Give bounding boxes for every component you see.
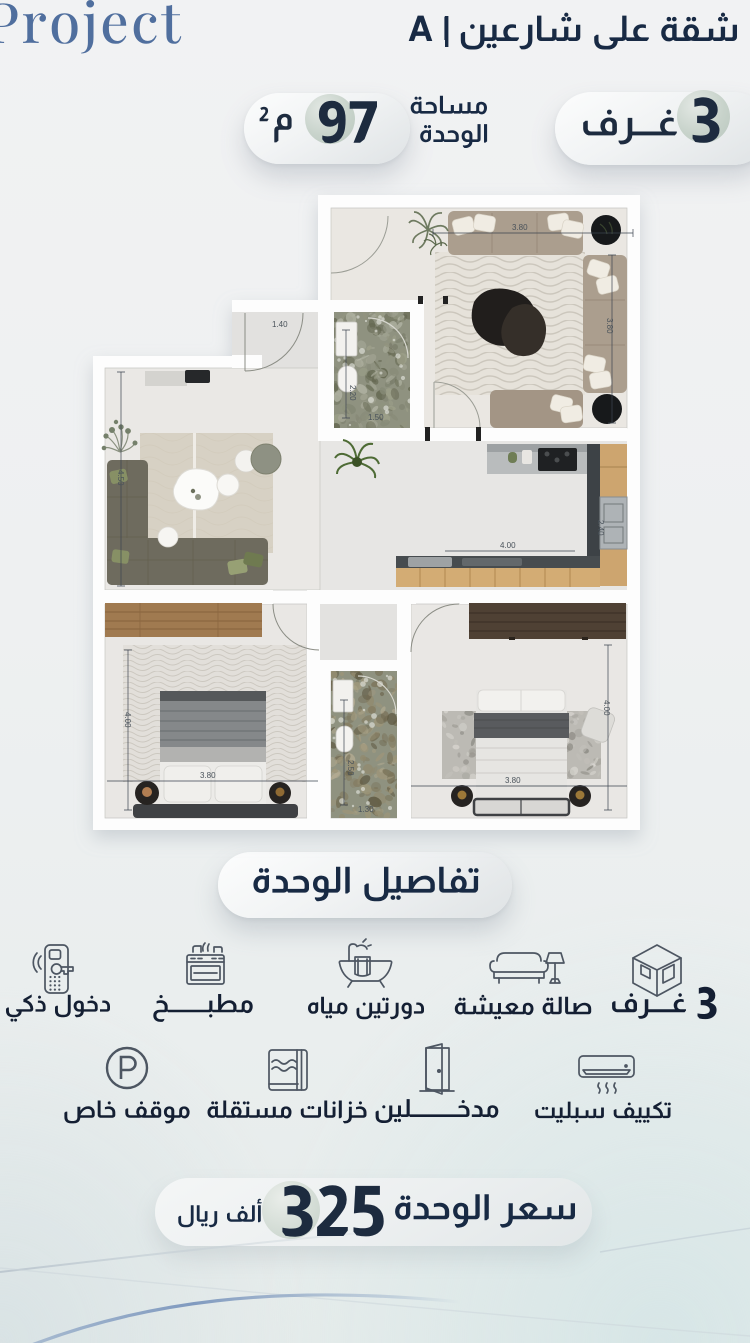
svg-text:4.50: 4.50 xyxy=(116,470,125,486)
svg-text:1.30: 1.30 xyxy=(358,805,374,814)
svg-text:3.80: 3.80 xyxy=(605,318,614,334)
svg-text:3.80: 3.80 xyxy=(512,223,528,232)
svg-text:3.80: 3.80 xyxy=(200,771,216,780)
svg-text:2.40: 2.40 xyxy=(596,520,605,536)
svg-text:2.20: 2.20 xyxy=(348,385,357,401)
svg-text:3.80: 3.80 xyxy=(505,776,521,785)
svg-text:4.00: 4.00 xyxy=(500,541,516,550)
svg-text:1.50: 1.50 xyxy=(368,413,384,422)
svg-text:2.50: 2.50 xyxy=(346,760,355,776)
svg-text:4.00: 4.00 xyxy=(123,712,132,728)
svg-text:4.00: 4.00 xyxy=(602,700,611,716)
svg-text:1.40: 1.40 xyxy=(272,320,288,329)
